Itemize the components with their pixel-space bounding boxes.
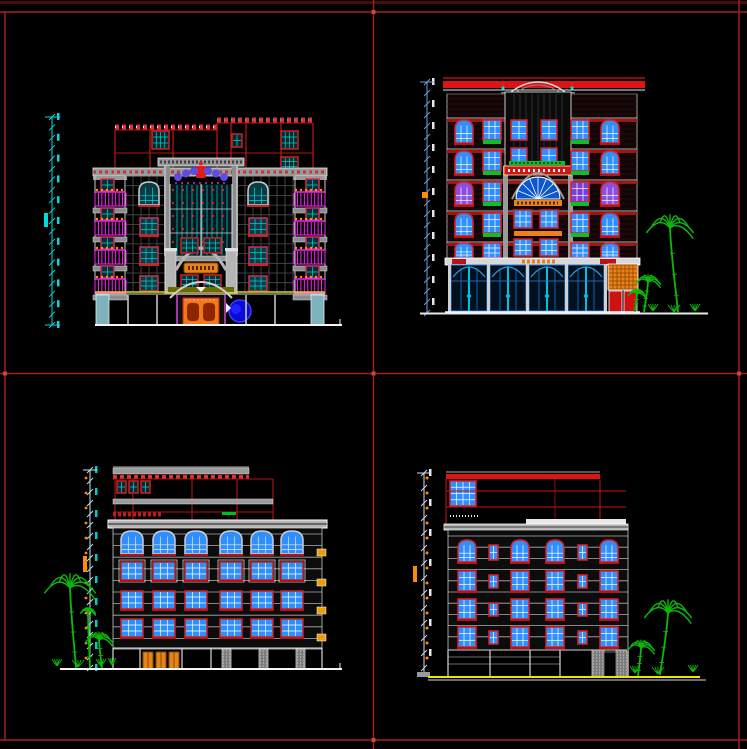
ground-line [428,677,706,680]
central-tower [164,162,238,294]
cad-viewport[interactable] [0,0,747,749]
palm-trees [44,574,116,668]
balconies-left [93,179,127,300]
dimension-line [83,466,98,671]
dimension-line [44,113,60,328]
entrance [95,282,325,325]
palm-trees [627,600,698,676]
cornice [108,520,327,528]
ground-floor [448,650,628,677]
cad-drawing-canvas[interactable] [0,0,747,749]
roof-structure [113,467,273,520]
dimension-line [420,78,435,316]
roof-band [443,78,645,90]
side-elevation-1[interactable] [44,466,342,671]
side-elevation-2[interactable] [413,469,706,680]
front-elevation-1[interactable] [44,113,342,328]
front-elevation-2[interactable] [420,78,708,316]
roof-structure [444,472,628,530]
balconies-right [293,179,327,300]
dimension-line [413,469,432,677]
storefront [445,258,640,312]
ground-floor [113,648,322,669]
